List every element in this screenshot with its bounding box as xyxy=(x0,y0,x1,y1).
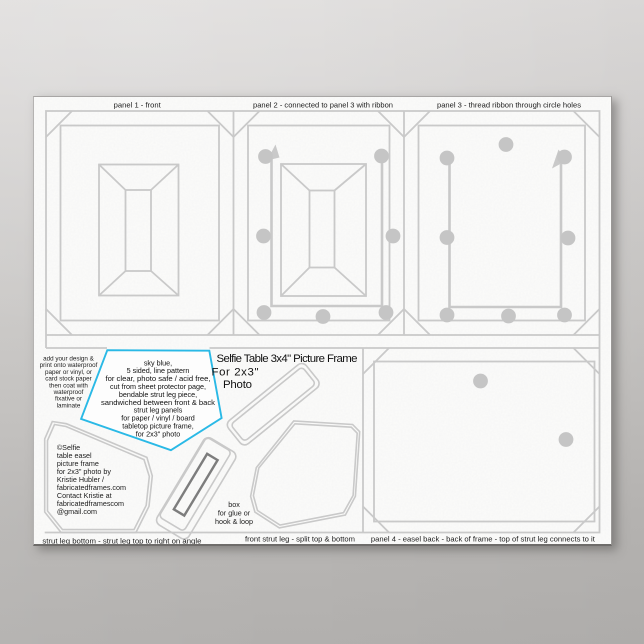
svg-text:laminate: laminate xyxy=(57,402,81,409)
svg-text:panel 2 - connected to panel 3: panel 2 - connected to panel 3 with ribb… xyxy=(253,101,393,110)
svg-text:panel 1 - front: panel 1 - front xyxy=(114,101,162,110)
svg-text:Selfie Table 3x4" Picture Fram: Selfie Table 3x4" Picture Frame xyxy=(217,353,358,365)
svg-text:hook & loop: hook & loop xyxy=(215,517,253,526)
svg-text:@gmail.com: @gmail.com xyxy=(57,507,97,516)
svg-text:front strut leg - split top &: front strut leg - split top & bottom xyxy=(245,535,355,544)
svg-text:for 2x3" photo: for 2x3" photo xyxy=(136,429,181,438)
svg-text:panel 4 - easel back - back of: panel 4 - easel back - back of frame - t… xyxy=(371,535,595,544)
svg-text:panel 3 - thread ribbon throug: panel 3 - thread ribbon through circle h… xyxy=(437,101,581,110)
svg-text:strut leg bottom - strut leg t: strut leg bottom - strut leg top to righ… xyxy=(42,537,201,545)
svg-text:For 2x3": For 2x3" xyxy=(212,367,259,379)
svg-text:Photo: Photo xyxy=(223,379,252,391)
